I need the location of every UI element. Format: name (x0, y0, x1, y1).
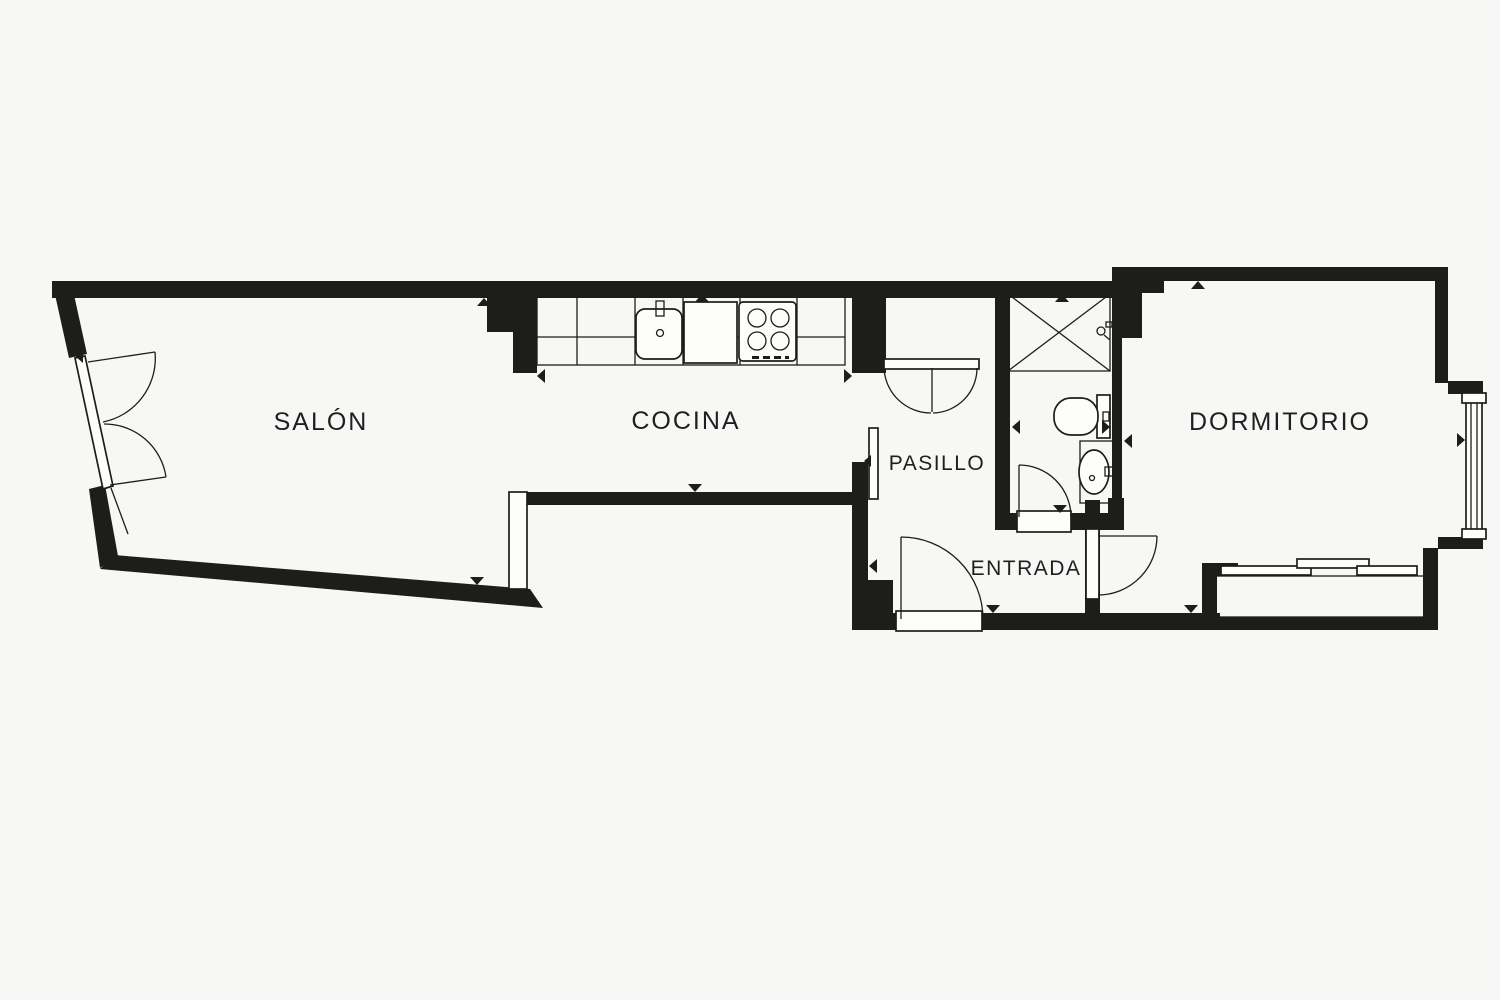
wall-segment (527, 492, 853, 505)
wall-segment (487, 292, 513, 332)
opening-marker-icon (537, 369, 545, 383)
closet-door-frame (884, 359, 979, 369)
wall-segment (1211, 617, 1427, 630)
opening-marker-icon (986, 605, 1000, 613)
wall-segment (1202, 563, 1217, 617)
opening-marker-icon (1191, 281, 1205, 289)
cooktop (739, 302, 796, 361)
room-label-salon: SALÓN (274, 407, 369, 436)
room-salon: SALÓN (75, 352, 368, 534)
balcony-french-door-frame (75, 356, 113, 489)
room-label-entrada: ENTRADA (971, 557, 1082, 580)
wall-segment (1448, 381, 1483, 394)
room-label-cocina: COCINA (631, 407, 740, 435)
closet-double-doors (884, 368, 977, 413)
bedroom-window (1462, 393, 1486, 539)
dishwasher-cabinet (684, 302, 737, 363)
opening-marker-icon (1184, 605, 1198, 613)
wall-segment (852, 580, 893, 630)
balcony-sliding-window (1216, 559, 1425, 617)
opening-marker-icon (470, 577, 484, 585)
opening-marker-icon (1457, 433, 1465, 447)
room-label-dormitorio: DORMITORIO (1189, 408, 1371, 436)
toilet (1054, 395, 1110, 438)
shower (1008, 294, 1112, 371)
wall-segment (1435, 267, 1448, 383)
bathroom (1008, 294, 1113, 532)
room-pasillo: PASILLO (869, 359, 985, 499)
bedroom-door (1098, 536, 1157, 595)
opening-marker-icon (688, 484, 702, 492)
opening-marker-icon (1012, 420, 1020, 434)
opening-marker-icon (869, 559, 877, 573)
wall-segment (513, 281, 537, 373)
entry-threshold (896, 611, 982, 631)
kitchen-sink (636, 301, 682, 359)
room-cocina: COCINA (537, 297, 845, 435)
floor-plan: SALÓN COCINA (0, 0, 1500, 1000)
opening-marker-icon (844, 369, 852, 383)
wall-segment (1112, 267, 1448, 281)
bathroom-doorway (1017, 511, 1071, 532)
wall-segment (852, 281, 886, 373)
corner-pier-opening (509, 492, 527, 589)
opening-marker-icon (1124, 434, 1132, 448)
room-label-pasillo: PASILLO (889, 452, 986, 475)
washbasin (1079, 441, 1113, 503)
wall-segment (52, 281, 1112, 298)
bedroom-doorway (1086, 529, 1099, 599)
